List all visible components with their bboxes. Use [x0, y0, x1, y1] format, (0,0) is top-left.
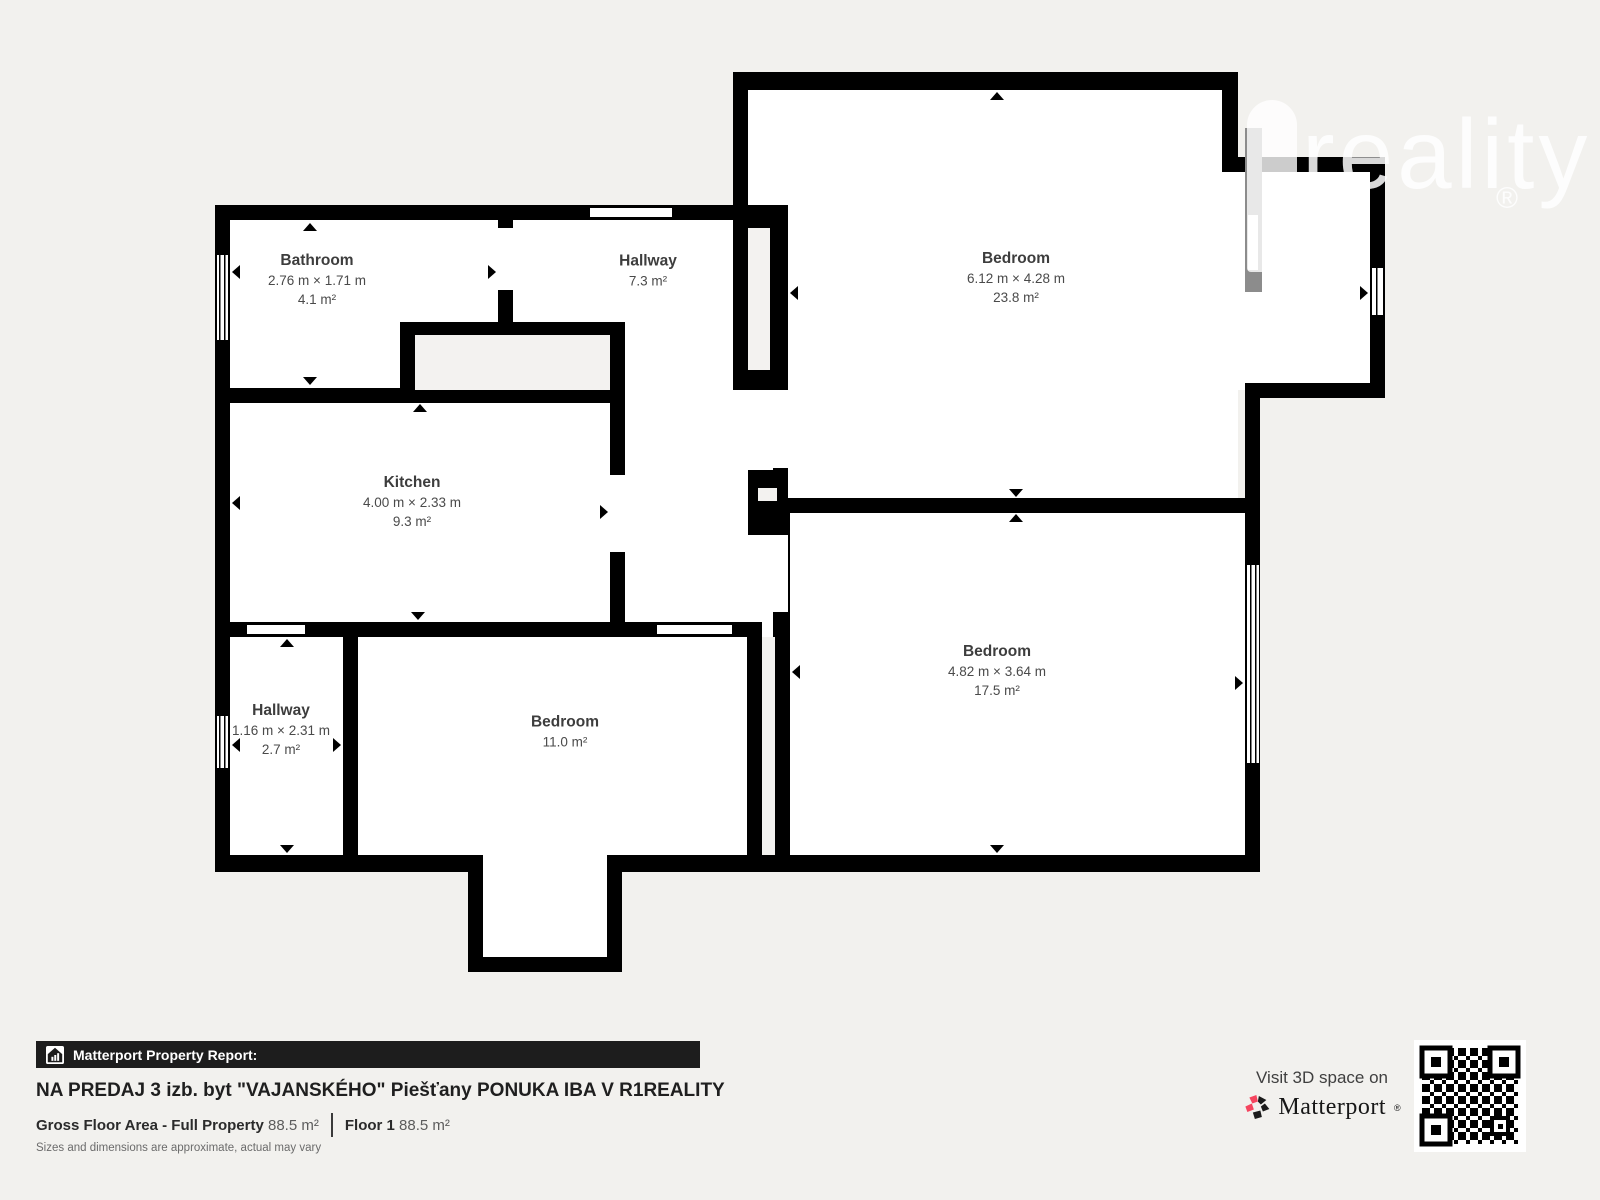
gross-floor-area-label: Gross Floor Area - Full Property [36, 1117, 264, 1134]
gross-floor-area-value: 88.5 m² [268, 1117, 319, 1134]
watermark-logo-bar [1247, 100, 1297, 272]
house-report-icon [46, 1046, 64, 1064]
watermark-text: reality [1302, 98, 1591, 211]
report-bar: Matterport Property Report: [36, 1041, 700, 1068]
qr-code [1414, 1040, 1526, 1152]
report-bar-label: Matterport Property Report: [73, 1047, 257, 1063]
watermark-registered-mark: ® [1496, 182, 1518, 216]
disclaimer: Sizes and dimensions are approximate, ac… [36, 1142, 321, 1154]
listing-title: NA PREDAJ 3 izb. byt "VAJANSKÉHO" Piešťa… [36, 1080, 725, 1102]
matterport-pinwheel-icon [1243, 1094, 1270, 1121]
matterport-mark: ® [1394, 1103, 1401, 1113]
separator [331, 1113, 333, 1137]
room-fills [230, 90, 1370, 963]
matterport-logo: Matterport ® [1243, 1094, 1400, 1121]
floor-value: 88.5 m² [399, 1117, 450, 1134]
floor-area-summary: Gross Floor Area - Full Property 88.5 m²… [36, 1113, 450, 1137]
floor-label: Floor 1 [345, 1117, 395, 1134]
matterport-wordmark: Matterport [1278, 1094, 1386, 1121]
visit-3d-label: Visit 3D space on [1256, 1068, 1388, 1088]
